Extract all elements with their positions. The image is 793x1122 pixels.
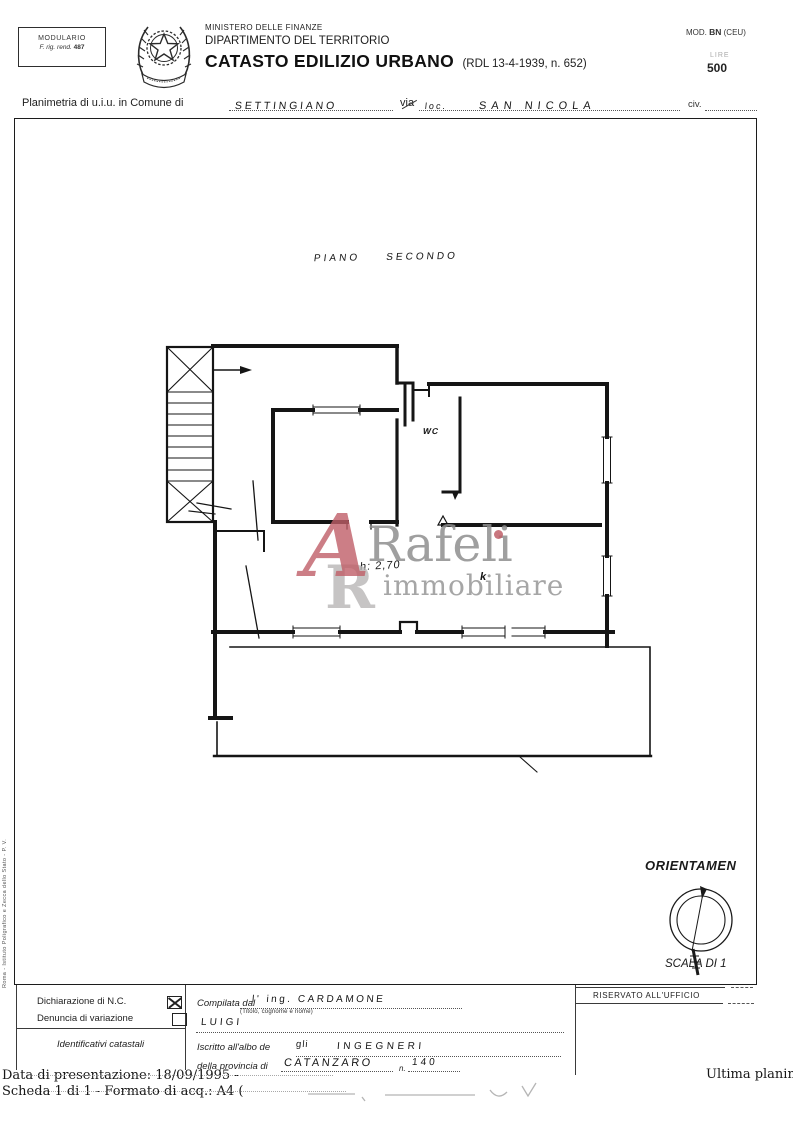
number-label: n. <box>399 1064 406 1073</box>
reserved-top-line <box>575 987 725 988</box>
wc-label: WC <box>422 426 440 436</box>
identifiers-label: Identificativi catastali <box>57 1039 144 1050</box>
department-line: DIPARTIMENTO DEL TERRITORIO <box>205 36 587 48</box>
footer-right-note: Ultima planim <box>706 1067 793 1082</box>
compiled-rule <box>240 994 462 1009</box>
declaration-label: Dichiarazione di N.C. <box>37 996 126 1007</box>
reserved-under-line <box>575 1003 723 1004</box>
variation-label: Denuncia di variazione <box>37 1013 133 1024</box>
footer-strike-dots-1 <box>28 1075 333 1076</box>
modulario-box: MODULARIO F. rig. rend. 487 <box>18 27 106 67</box>
street-value: SAN NICOLA <box>479 100 597 112</box>
form-divider <box>16 1028 185 1029</box>
ministry-line: MINISTERO DELLE FINANZE <box>205 24 587 32</box>
number-rule <box>408 1057 460 1072</box>
form-mid-border <box>185 985 186 1070</box>
italy-emblem-icon <box>131 15 197 91</box>
modulario-title: MODULARIO <box>19 35 105 42</box>
location-prefix: loc. <box>424 101 447 111</box>
pen-marks <box>246 481 259 638</box>
mod-bn-label: MOD. BN (CEU) <box>686 27 746 37</box>
name-rule <box>196 1018 564 1033</box>
checkbox-variation <box>172 1013 187 1026</box>
register-rule <box>296 1042 561 1057</box>
street-field: loc. SAN NICOLA <box>419 96 680 111</box>
balcony-outline <box>214 647 651 772</box>
stamp-value: 500 <box>707 61 727 75</box>
comune-field: SETTINGIANO <box>229 96 393 111</box>
watermark-letter-a: A <box>303 504 370 590</box>
watermark-subtitle: immobiliare <box>383 572 564 600</box>
checkbox-declaration <box>167 996 182 1009</box>
scale-label: SCALA DI 1 <box>665 958 727 970</box>
cadastral-document-page: MODULARIO F. rig. rend. 487 MINISTERO DE… <box>0 0 793 1122</box>
modulario-ref: F. rig. rend. 487 <box>19 44 105 51</box>
civ-label: civ. <box>688 99 702 110</box>
subject-prefix: Planimetria di u.i.u. in Comune di <box>22 97 183 109</box>
orientation-title: ORIENTAMEN <box>645 858 736 873</box>
compiled-by-hint: (Titolo, cognome e nome) <box>240 1009 313 1015</box>
reserved-top-dash <box>731 987 753 988</box>
margin-print-note: Roma - Istituto Poligrafico e Zecca dell… <box>2 826 13 988</box>
ministry-header: MINISTERO DELLE FINANZE DIPARTIMENTO DEL… <box>205 24 587 71</box>
civ-field <box>705 96 757 111</box>
reserved-office-title: RISERVATO ALL'UFFICIO <box>593 991 700 1000</box>
document-title-ref: (RDL 13-4-1939, n. 652) <box>462 58 586 70</box>
document-title: CATASTO EDILIZIO URBANO <box>205 51 454 71</box>
watermark: R A Rafeli immobiliare <box>303 510 553 615</box>
watermark-i-dot <box>494 530 503 539</box>
reserved-under-dash <box>728 1003 754 1004</box>
reserved-left-border <box>575 985 576 1075</box>
stamp-currency: LIRE <box>710 52 730 59</box>
faint-handwriting-marks <box>300 1082 560 1106</box>
province-rule <box>281 1057 393 1072</box>
register-label: Iscritto all'albo de <box>197 1042 270 1053</box>
stairs <box>167 347 252 522</box>
footer-strike-dots-2 <box>28 1091 346 1092</box>
via-label: via <box>400 97 414 109</box>
comune-value: SETTINGIANO <box>234 100 337 112</box>
document-title-row: CATASTO EDILIZIO URBANO (RDL 13-4-1939, … <box>205 53 587 71</box>
